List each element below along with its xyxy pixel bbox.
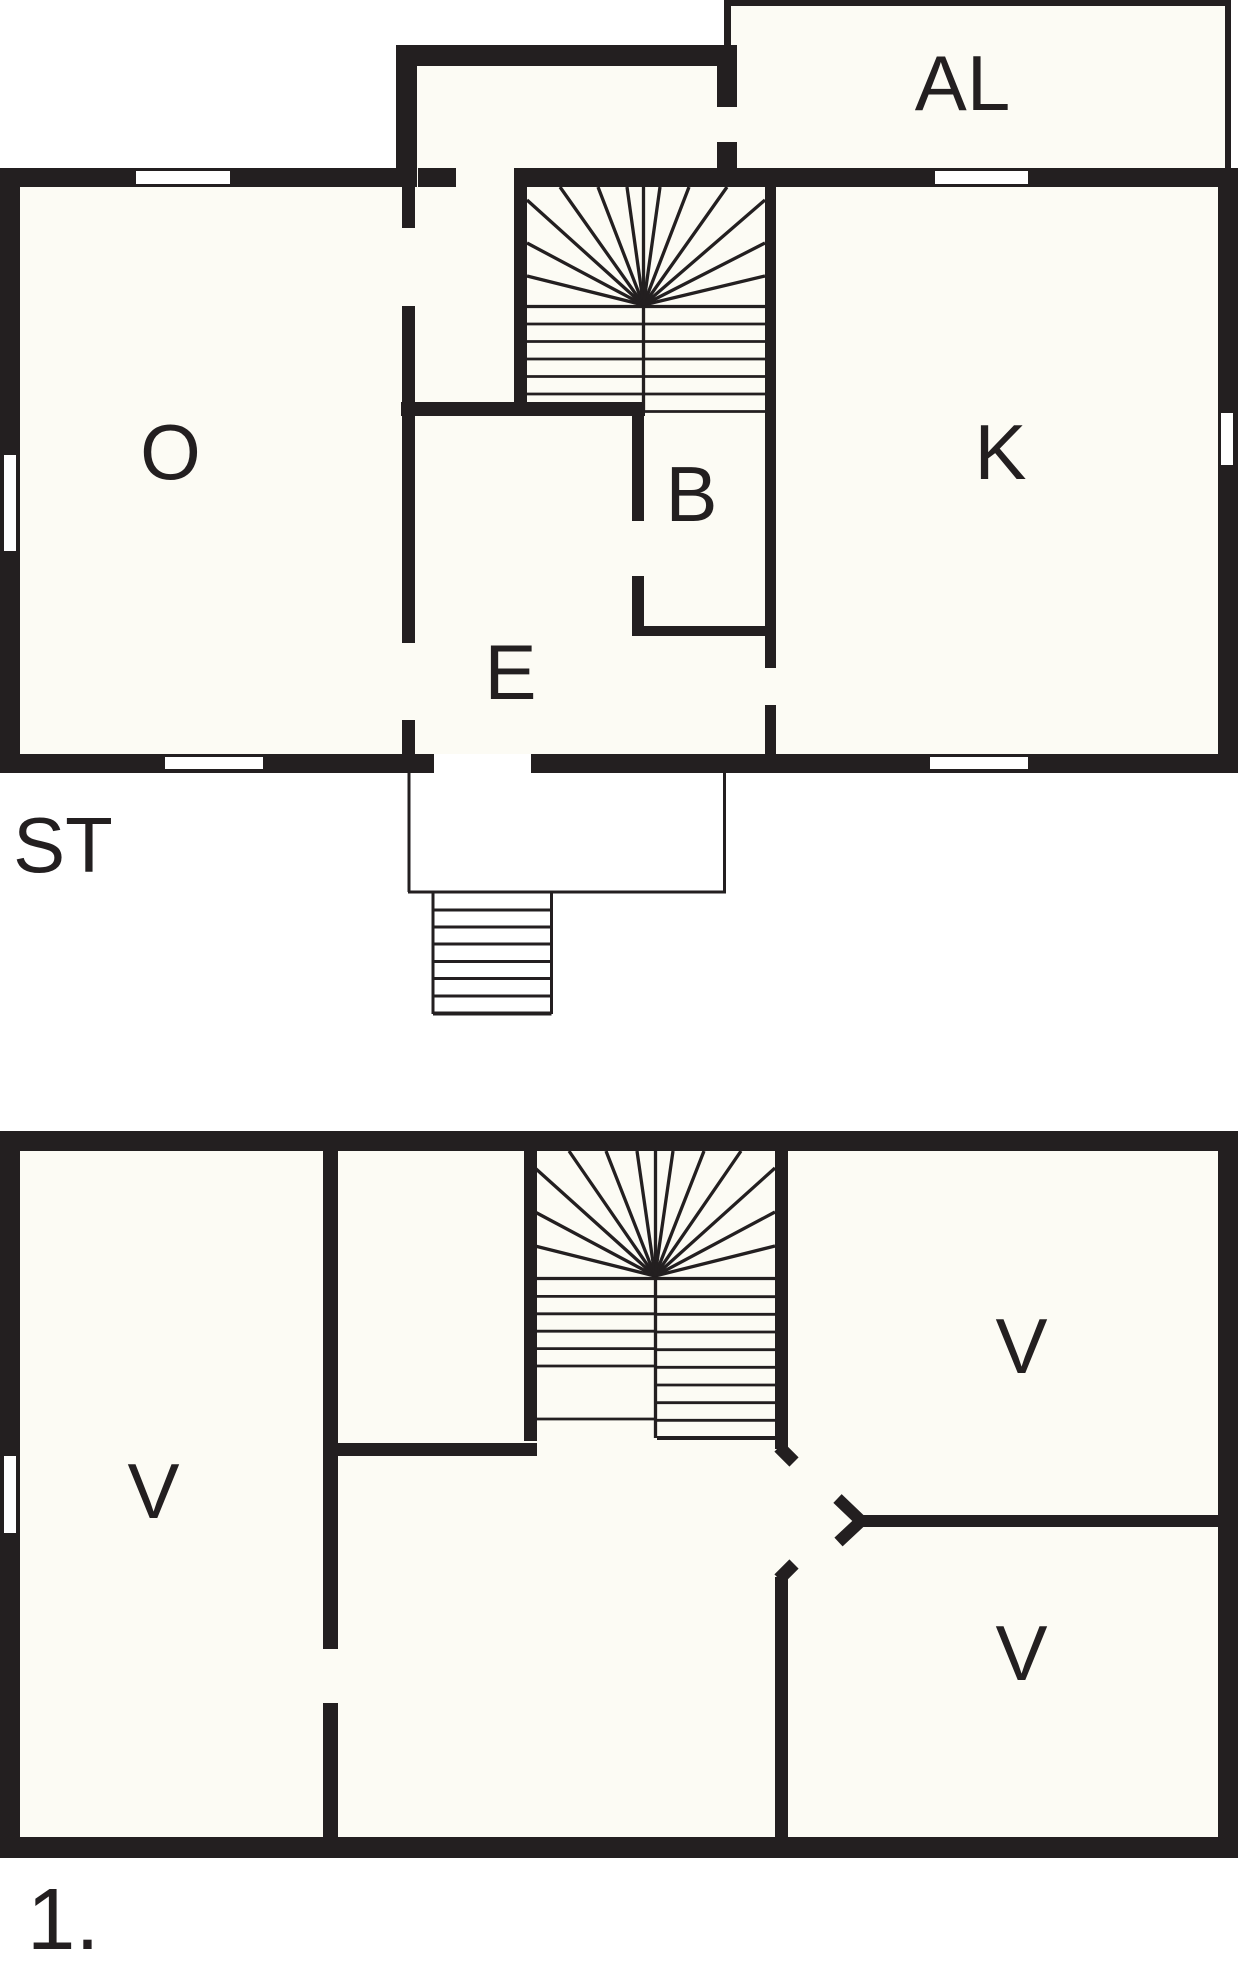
svg-text:ST: ST — [13, 801, 113, 889]
svg-text:O: O — [140, 408, 201, 496]
svg-text:E: E — [484, 628, 536, 716]
svg-text:B: B — [665, 450, 717, 538]
svg-text:1.: 1. — [27, 1871, 100, 1968]
svg-text:V: V — [995, 1609, 1047, 1697]
svg-text:V: V — [127, 1447, 179, 1535]
svg-text:V: V — [995, 1302, 1047, 1390]
svg-text:K: K — [974, 408, 1026, 496]
svg-text:AL: AL — [915, 39, 1010, 127]
